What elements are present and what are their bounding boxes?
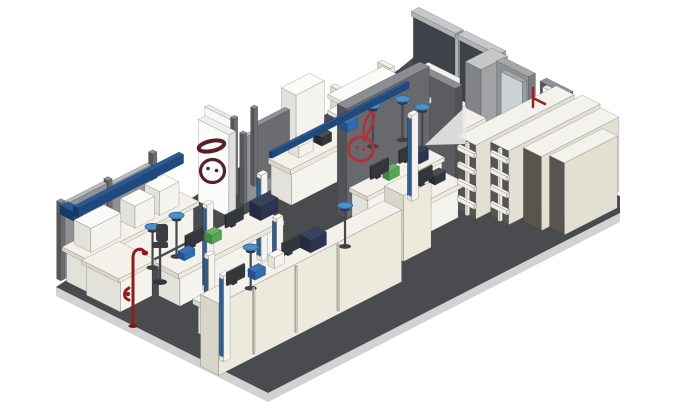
- cabinet-seam-2: [295, 265, 298, 332]
- cabinet-seam-3: [337, 244, 340, 311]
- wall-logo-eye-2: [362, 148, 365, 151]
- isometric-lab-render: [0, 0, 680, 420]
- logo-eye-1: [206, 167, 210, 171]
- cabinet-seam-1: [252, 287, 255, 354]
- mid-window-post: [240, 131, 247, 205]
- logo-panel: [198, 116, 236, 217]
- emergency-shower-head: [142, 251, 148, 256]
- wall-logo-eye-1: [355, 146, 358, 149]
- logo-eye-2: [215, 169, 219, 173]
- emergency-shower-valve: [126, 292, 130, 296]
- 3d-model-viewport[interactable]: [0, 0, 680, 420]
- emergency-shower-base: [129, 324, 138, 328]
- service-column-1: [407, 110, 418, 201]
